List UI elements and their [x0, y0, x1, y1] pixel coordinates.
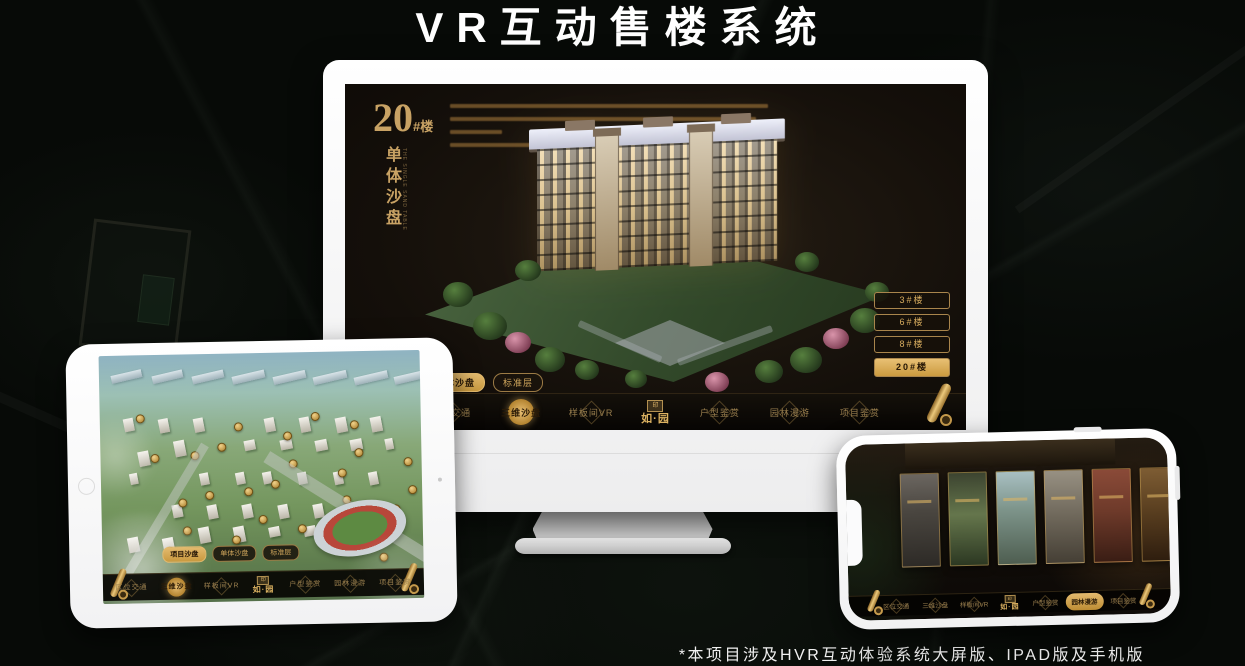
brand-name: 如·园 — [253, 586, 275, 594]
community-building — [369, 416, 382, 433]
community-building — [314, 438, 328, 451]
footnote-text: *本项目涉及HVR互动体验系统大屏版、IPAD版及手机版 — [679, 641, 1145, 665]
community-building — [193, 418, 205, 434]
green-tree — [755, 360, 783, 383]
nav-label: 区位交通 — [116, 582, 148, 593]
building-badge[interactable] — [232, 535, 241, 544]
tab-standard-floor[interactable]: 标准层 — [493, 373, 543, 392]
seal-icon: 印 — [647, 400, 663, 412]
section-title-vertical: 单体沙盘 — [379, 146, 403, 230]
green-tree — [625, 370, 647, 388]
scroll-menu-icon[interactable] — [922, 380, 956, 428]
interior-ceiling-beam — [905, 438, 1116, 469]
page-title: VR互动售楼系统 — [0, 0, 1245, 56]
stair-tower — [595, 134, 619, 271]
scroll-curl-icon — [874, 606, 883, 615]
nav-item-unit-types[interactable]: 户型鉴赏 — [1026, 593, 1064, 611]
community-building — [235, 472, 246, 485]
nav-label: 样板间VR — [204, 580, 240, 591]
community-building — [279, 439, 292, 451]
nav-label: 三维沙盘 — [501, 406, 541, 419]
green-tree — [790, 347, 822, 373]
brand-name: 如·园 — [1000, 604, 1020, 611]
scroll-menu-icon[interactable] — [1136, 581, 1155, 607]
tablet-home-button[interactable] — [78, 478, 95, 495]
nav-label: 户型鉴赏 — [289, 579, 321, 590]
building-model-scene[interactable] — [425, 132, 885, 392]
context-building — [353, 370, 388, 386]
gallery-card-garden-green[interactable] — [948, 472, 989, 567]
gallery-card-row — [900, 467, 1171, 568]
description-line — [450, 104, 768, 108]
nav-item-garden-tour[interactable]: 园林漫游 — [1065, 592, 1103, 610]
building-badges — [99, 350, 420, 356]
green-tree — [473, 312, 507, 340]
background-green-plaque — [137, 274, 175, 326]
nav-label: 项目鉴赏 — [1110, 595, 1136, 606]
card-caption-blurred — [1051, 496, 1075, 500]
nav-item-3d-sandtable[interactable]: 三维沙盘 — [154, 575, 198, 598]
tablet-screen: 项目沙盘 单体沙盘 标准层 区位交通 三维沙盘 样板间VR 印 — [99, 350, 425, 604]
residential-building-model — [537, 119, 777, 281]
tablet-camera-icon — [438, 478, 442, 482]
tablet-device: 项目沙盘 单体沙盘 标准层 区位交通 三维沙盘 样板间VR 印 — [65, 337, 457, 628]
building-badge[interactable] — [244, 488, 253, 497]
green-tree — [535, 347, 565, 372]
city-context-buildings — [99, 350, 420, 356]
building-badge[interactable] — [404, 457, 413, 466]
community-buildings — [99, 350, 420, 356]
context-building — [313, 370, 348, 385]
nav-item-showroom-vr[interactable]: 样板间VR — [557, 397, 625, 427]
nav-label: 园林漫游 — [1071, 596, 1097, 607]
community-building — [158, 418, 170, 433]
brand-logo: 印 如·园 — [641, 400, 670, 425]
roof-cap — [643, 116, 673, 127]
phone-screen: 区位交通 三维沙盘 样板间VR 印 如·园 户型鉴赏 — [845, 437, 1171, 621]
nav-label: 园林漫游 — [770, 406, 810, 419]
tab-single-sandtable[interactable]: 单体沙盘 — [212, 545, 256, 562]
roof-cap — [565, 120, 595, 131]
nav-label: 样板间VR — [569, 406, 614, 419]
building-badge[interactable] — [409, 485, 418, 494]
community-building — [264, 417, 277, 433]
gallery-card-arch-gray[interactable] — [900, 473, 941, 568]
nav-item-unit-types[interactable]: 户型鉴赏 — [686, 397, 754, 427]
building-badge[interactable] — [337, 468, 346, 477]
community-building — [385, 438, 395, 450]
background-picture-frame — [79, 219, 192, 358]
community-building — [172, 440, 186, 457]
brand-logo: 印 如·园 — [252, 576, 274, 594]
building-badge[interactable] — [217, 443, 226, 452]
nav-label: 户型鉴赏 — [700, 406, 740, 419]
green-tree — [795, 252, 819, 272]
nav-label: 项目鉴赏 — [840, 406, 880, 419]
nav-label: 三维沙盘 — [161, 581, 193, 592]
gallery-card-interior-warm[interactable] — [1140, 467, 1172, 562]
gallery-card-autumn[interactable] — [1092, 468, 1133, 563]
community-building — [206, 504, 218, 519]
community-building — [277, 503, 290, 519]
nav-item-showroom-vr[interactable]: 样板间VR — [955, 595, 993, 613]
nav-label: 区位交通 — [883, 600, 909, 611]
tab-project-sandtable[interactable]: 项目沙盘 — [162, 546, 206, 563]
scroll-curl-icon — [1146, 599, 1155, 608]
card-caption-blurred — [907, 500, 931, 504]
context-building — [272, 370, 306, 385]
roof-cap — [721, 113, 751, 124]
context-building — [393, 370, 424, 386]
pink-blossom-tree — [823, 328, 849, 349]
building-badge[interactable] — [271, 479, 280, 488]
context-building — [111, 369, 143, 384]
tablet-view-tab-group: 项目沙盘 单体沙盘 标准层 — [162, 544, 299, 563]
pink-blossom-tree — [705, 372, 729, 392]
building-badge[interactable] — [178, 499, 187, 508]
community-building — [368, 471, 380, 485]
fog-cloud — [99, 415, 162, 497]
context-building — [191, 370, 224, 385]
green-tree — [575, 360, 599, 380]
floor-button[interactable]: 6#楼 — [874, 314, 950, 331]
stage: VR互动售楼系统 *本项目涉及HVR互动体验系统大屏版、IPAD版及手机版 20… — [0, 0, 1245, 666]
brand-name: 如·园 — [641, 414, 670, 425]
building-badge[interactable] — [259, 515, 268, 524]
nav-item-garden-tour[interactable]: 园林漫游 — [756, 397, 824, 427]
nav-item-garden-tour[interactable]: 园林漫游 — [328, 572, 372, 595]
building-number: 20 — [373, 95, 413, 140]
floor-button[interactable]: 8#楼 — [874, 336, 950, 353]
section-title-vertical-en: THE SINGLE SAND TABLE — [401, 148, 407, 231]
nav-item-3d-sandtable[interactable]: 三维沙盘 — [916, 596, 954, 614]
community-building — [299, 417, 312, 433]
building-badge[interactable] — [205, 491, 214, 500]
brand-logo: 印 如·园 — [1000, 595, 1020, 611]
card-caption-blurred — [1099, 495, 1123, 499]
community-building — [334, 416, 347, 433]
floor-button-group: 3#楼 6#楼 8#楼 20#楼 — [874, 292, 950, 377]
phone-volume-button[interactable] — [1074, 427, 1102, 433]
nav-label: 样板间VR — [960, 599, 989, 610]
nav-label: 户型鉴赏 — [1032, 597, 1058, 608]
building-badge[interactable] — [283, 432, 292, 441]
tab-standard-floor[interactable]: 标准层 — [262, 544, 299, 561]
nav-label: 园林漫游 — [334, 578, 366, 589]
seal-icon: 印 — [257, 576, 269, 585]
card-caption-blurred — [1147, 494, 1171, 498]
phone-device: 区位交通 三维沙盘 样板间VR 印 如·园 户型鉴赏 — [836, 428, 1181, 630]
nav-item-3d-sandtable[interactable]: 三维沙盘 — [487, 397, 555, 427]
green-tree — [443, 282, 473, 307]
building-badge[interactable] — [234, 423, 243, 432]
context-building — [232, 370, 265, 385]
card-caption-blurred — [955, 499, 979, 503]
floor-button[interactable]: 3#楼 — [874, 292, 950, 309]
community-building — [242, 504, 254, 520]
building-badge[interactable] — [310, 411, 319, 420]
nav-item-showroom-vr[interactable]: 样板间VR — [199, 574, 243, 597]
phone-notch — [845, 500, 863, 566]
scroll-curl-icon — [940, 414, 952, 426]
pink-blossom-tree — [505, 332, 531, 353]
stair-tower — [689, 130, 713, 267]
phone-bottom-nav: 区位交通 三维沙盘 样板间VR 印 如·园 户型鉴赏 — [849, 588, 1171, 617]
context-building — [151, 369, 183, 384]
building-badge[interactable] — [350, 421, 359, 430]
phone-power-button[interactable] — [1175, 466, 1181, 500]
scroll-menu-icon[interactable] — [864, 588, 883, 614]
nav-label: 三维沙盘 — [922, 599, 948, 610]
monitor-stand-base — [515, 538, 731, 554]
community-building — [268, 526, 281, 538]
building-badge[interactable] — [354, 448, 363, 457]
card-caption-blurred — [1003, 498, 1027, 502]
nav-item-project-gallery[interactable]: 项目鉴赏 — [826, 397, 894, 427]
community-building — [244, 439, 257, 451]
nav-item-unit-types[interactable]: 户型鉴赏 — [283, 573, 327, 596]
gallery-card-sky-building[interactable] — [996, 470, 1037, 565]
seal-icon: 印 — [1004, 595, 1015, 603]
gallery-card-facade[interactable] — [1044, 469, 1085, 564]
floor-button-active[interactable]: 20#楼 — [874, 358, 950, 377]
community-building — [199, 472, 210, 485]
description-line — [450, 117, 756, 121]
nav-label: 项目鉴赏 — [379, 577, 411, 588]
building-facade-windows — [537, 139, 777, 271]
